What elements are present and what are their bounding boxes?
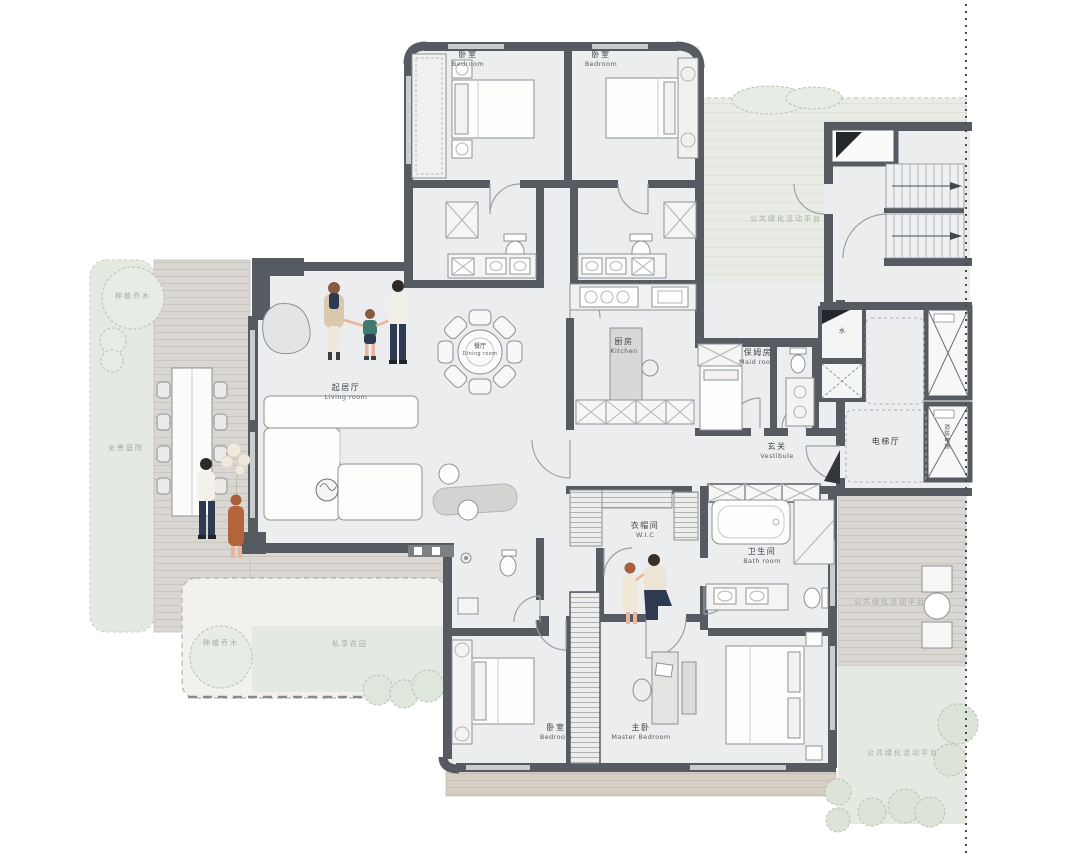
nightstand [806,746,822,760]
window [690,765,786,770]
armchair [263,304,311,354]
tree [934,744,966,776]
tree [938,704,978,744]
tree [101,350,123,372]
tree [825,779,851,805]
window [448,44,504,49]
desk-chair [633,679,651,701]
wardrobe [678,58,698,158]
window [830,646,835,730]
kitchen-island [610,328,642,406]
floor-plan-page: 卧室 Bedroom 卧室 Bedroom 餐厅 Dining room 起居厅… [0,0,1080,857]
window [466,765,530,770]
desk [652,652,678,724]
bed-top-right [606,78,678,138]
plant [316,479,338,501]
deck-strip-bottom [446,770,836,796]
shaft-ladder-strip [570,592,600,764]
window [250,432,255,518]
dining-table [438,310,522,394]
outdoor-table-set [922,566,952,648]
nightstand [806,632,822,646]
tree [826,808,850,832]
window [250,330,255,420]
tree [412,670,444,702]
floor-plan-drawing [0,0,1080,857]
tree [915,797,945,827]
stool [642,360,658,376]
tree-canopy [786,87,842,109]
shelf [682,662,696,714]
vestibule-closet [708,484,820,502]
tree [858,798,886,826]
window [592,44,648,49]
window [406,76,411,164]
tree [363,675,393,705]
tree [102,267,164,329]
tree [190,626,252,688]
bed-top-left [452,80,534,138]
wardrobe [412,54,446,178]
